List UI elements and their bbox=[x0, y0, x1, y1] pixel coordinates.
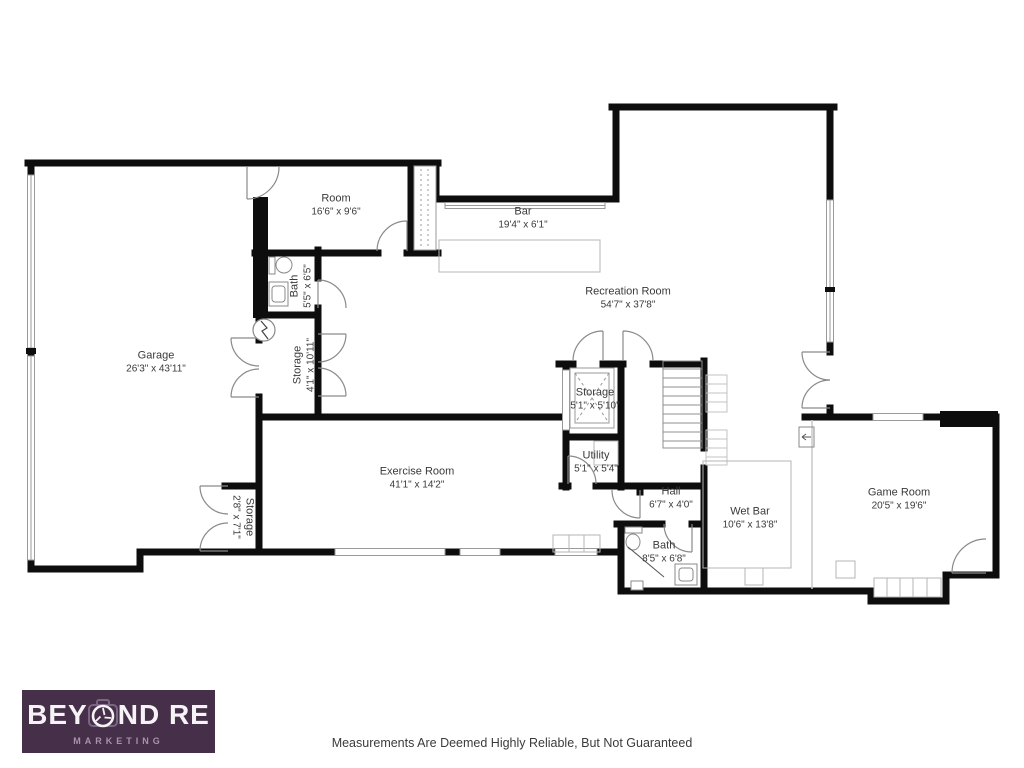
logo-brand-text: BEY ND RE bbox=[27, 697, 210, 733]
room-label-utility: Utility 5'1" x 5'4" bbox=[574, 448, 618, 475]
staircase-lower-flight bbox=[706, 375, 727, 465]
room-label-bath-2: Bath 8'5" x 6'8" bbox=[642, 538, 686, 565]
room-label-exercise-room: Exercise Room 41'1" x 14'2" bbox=[380, 464, 455, 491]
room-label-hall: Hall 6'7" x 4'0" bbox=[649, 484, 693, 511]
room-label-wet-bar: Wet Bar 10'6" x 13'8" bbox=[723, 504, 778, 531]
room-label-recreation-room: Recreation Room 54'7" x 37'8" bbox=[585, 284, 671, 311]
camera-aperture-icon bbox=[88, 697, 118, 733]
logo-brand-post: ND RE bbox=[118, 701, 210, 729]
exterior-steps bbox=[874, 578, 941, 597]
electrical-panel-icon bbox=[253, 319, 275, 341]
floorplan-drawing bbox=[0, 0, 1024, 768]
room-label-storage-center: Storage 5'1" x 5'10" bbox=[570, 385, 619, 412]
chase bbox=[414, 166, 436, 250]
room-label-storage-garage: Storage 4'1" x 10'11" bbox=[290, 338, 317, 392]
thick-walls bbox=[253, 197, 998, 427]
window-ticks bbox=[26, 287, 835, 354]
disclaimer-text: Measurements Are Deemed Highly Reliable,… bbox=[0, 736, 1024, 750]
room-label-storage-small: Storage 2'8" x 7'1" bbox=[229, 495, 256, 539]
room-label-bath-1: Bath 5'5" x 6'5" bbox=[287, 264, 314, 308]
bar-counter bbox=[439, 240, 600, 272]
room-label-bar: Bar 19'4" x 6'1" bbox=[498, 204, 547, 231]
floorplan-page: Room 16'6" x 9'6" Bar 19'4" x 6'1" Bath … bbox=[0, 0, 1024, 768]
staircase bbox=[663, 361, 702, 448]
room-label-garage: Garage 26'3" x 43'11" bbox=[126, 348, 186, 375]
room-label-room: Room 16'6" x 9'6" bbox=[311, 191, 360, 218]
logo-brand-pre: BEY bbox=[27, 701, 88, 729]
room-label-game-room: Game Room 20'5" x 19'6" bbox=[868, 485, 930, 512]
